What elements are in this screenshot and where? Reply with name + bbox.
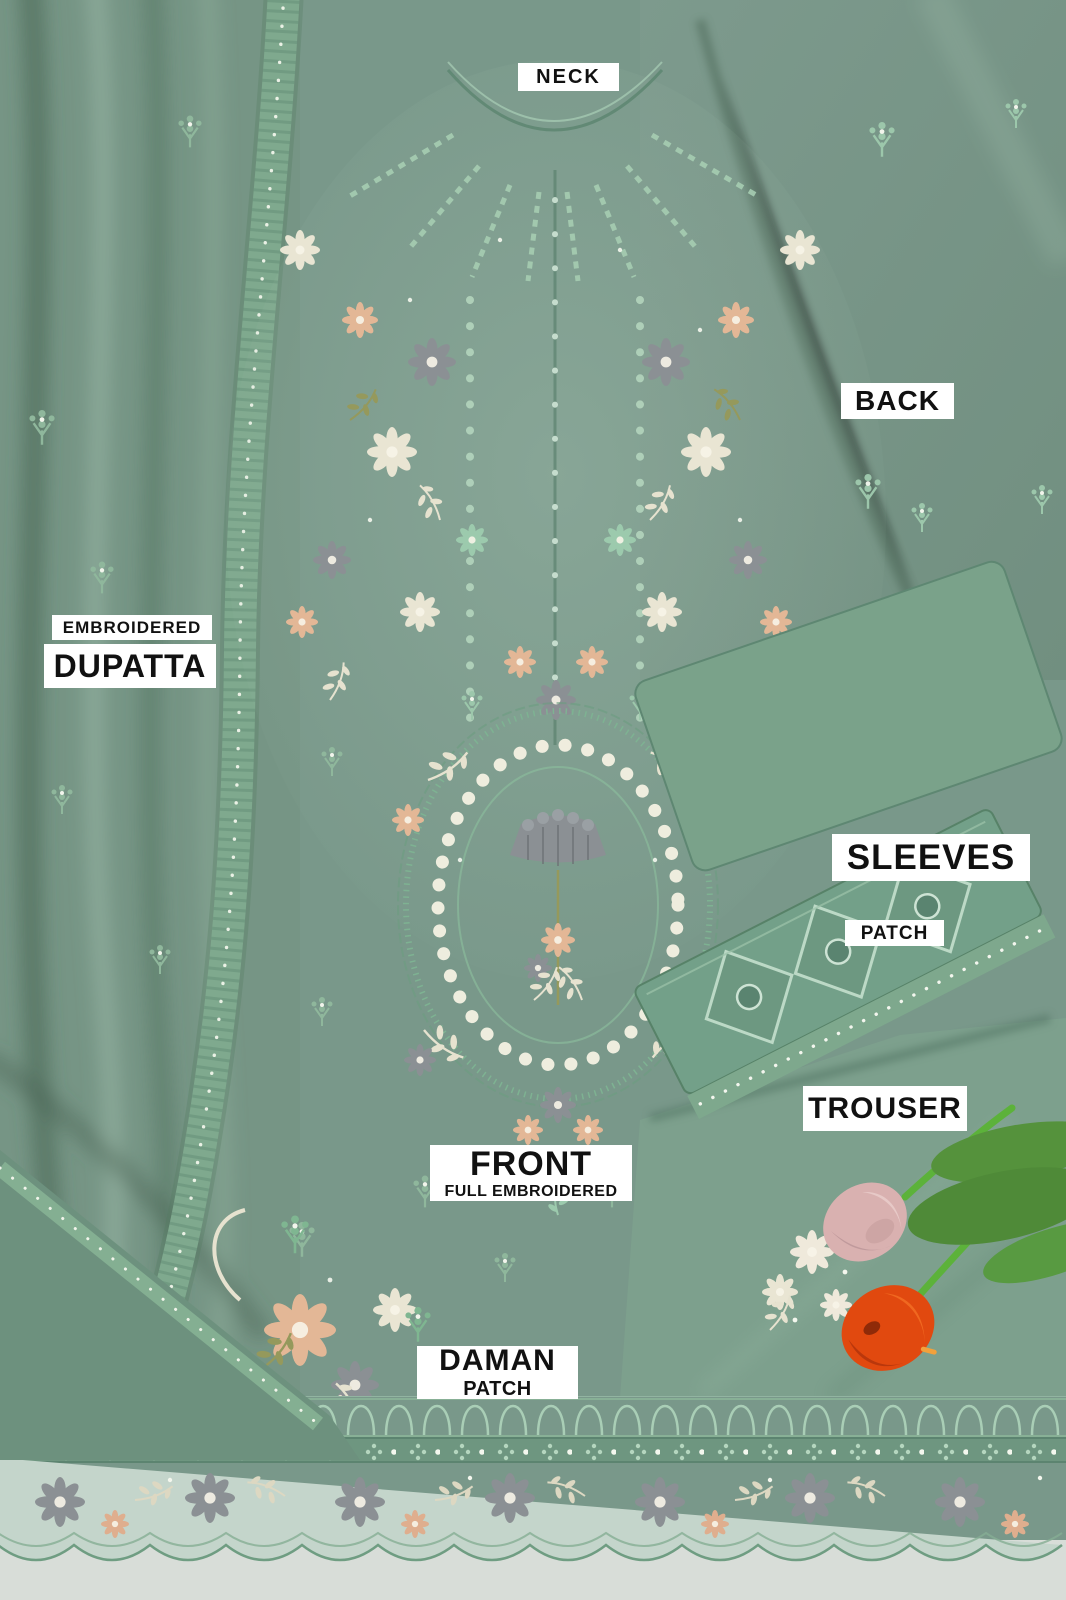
label-daman: DAMAN PATCH [417, 1346, 578, 1399]
label-dupatta-text: DUPATTA [54, 650, 207, 682]
label-sleeves-patch-text: PATCH [861, 924, 929, 943]
label-neck-text: NECK [536, 67, 601, 87]
label-sleeves-patch: PATCH [845, 920, 944, 946]
label-dupatta-embroidered-text: EMBROIDERED [63, 619, 202, 636]
product-photo: NECK BACK EMBROIDERED DUPATTA SLEEVES PA… [0, 0, 1066, 1600]
label-neck: NECK [518, 63, 619, 91]
label-trouser: TROUSER [803, 1086, 967, 1131]
label-dupatta-embroidered: EMBROIDERED [52, 615, 212, 640]
label-front-text: FRONT [470, 1147, 592, 1181]
label-sleeves: SLEEVES [832, 834, 1030, 881]
label-dupatta: DUPATTA [44, 644, 216, 688]
label-trouser-text: TROUSER [808, 1094, 962, 1124]
label-front-subtext: FULL EMBROIDERED [444, 1184, 617, 1200]
label-back-text: BACK [855, 387, 940, 415]
label-front: FRONT FULL EMBROIDERED [430, 1145, 632, 1201]
label-back: BACK [841, 383, 954, 419]
label-sleeves-text: SLEEVES [847, 840, 1015, 875]
label-daman-text: DAMAN [439, 1346, 556, 1376]
label-daman-subtext: PATCH [463, 1379, 531, 1399]
